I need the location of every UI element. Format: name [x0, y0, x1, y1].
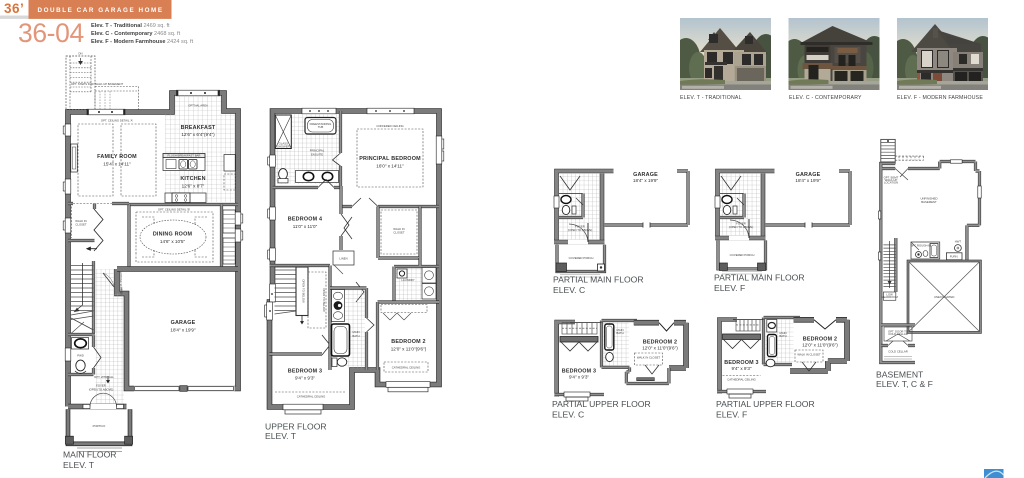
- svg-text:PARTIAL MAIN FLOOR: PARTIAL MAIN FLOOR: [553, 275, 644, 285]
- svg-text:HWT: HWT: [955, 240, 962, 244]
- svg-text:ELEV. C - CONTEMPORARY: ELEV. C - CONTEMPORARY: [789, 95, 862, 101]
- svg-text:BATH: BATH: [616, 331, 623, 335]
- svg-text:PARTIAL UPPER FLOOR: PARTIAL UPPER FLOOR: [716, 399, 815, 409]
- svg-text:TUB: TUB: [318, 125, 324, 129]
- svg-text:GARAGE: GARAGE: [171, 320, 196, 326]
- svg-text:DN: DN: [78, 52, 82, 56]
- svg-text:HEADROOM: HEADROOM: [881, 295, 898, 299]
- svg-text:BASEMENT: BASEMENT: [876, 370, 924, 380]
- svg-text:BEDROOM 3: BEDROOM 3: [288, 369, 322, 375]
- svg-text:CLOSET: CLOSET: [393, 230, 404, 234]
- svg-text:CATHEDRAL CEILING: CATHEDRAL CEILING: [727, 378, 756, 382]
- svg-text:OPT. WTRFALL: OPT. WTRFALL: [94, 375, 114, 379]
- svg-text:LOCATION: LOCATION: [884, 181, 898, 185]
- svg-text:WALK IN CLOSET: WALK IN CLOSET: [797, 353, 821, 357]
- svg-text:MAIN FLOOR: MAIN FLOOR: [63, 450, 116, 460]
- svg-text:3PC ROUGH-IN: 3PC ROUGH-IN: [911, 244, 931, 248]
- svg-text:UNEXCAVATED: UNEXCAVATED: [934, 295, 954, 299]
- svg-text:ELEV. F: ELEV. F: [716, 410, 747, 420]
- svg-text:12'0" x 11'0"(9'6"): 12'0" x 11'0"(9'6"): [802, 343, 838, 348]
- svg-text:9'4" x 9'3": 9'4" x 9'3": [569, 375, 589, 380]
- svg-text:12'0" x 11'0"(9'6"): 12'0" x 11'0"(9'6"): [391, 347, 427, 352]
- svg-text:UPPER FLOOR: UPPER FLOOR: [265, 422, 327, 432]
- svg-text:12'6" x 6'4"(9'4"): 12'6" x 6'4"(9'4"): [181, 132, 215, 137]
- svg-text:WALK IN CLOSET: WALK IN CLOSET: [637, 356, 661, 360]
- svg-text:BATH: BATH: [779, 334, 786, 338]
- svg-text:ELEV. T: ELEV. T: [265, 431, 297, 441]
- svg-text:9'4" x 9'3": 9'4" x 9'3": [731, 366, 751, 371]
- svg-text:COVERED PORCH: COVERED PORCH: [730, 253, 755, 257]
- svg-text:36-04: 36-04: [18, 18, 84, 48]
- svg-text:SHOWER: SHOWER: [277, 144, 290, 148]
- svg-text:15'4" x 14'11": 15'4" x 14'11": [103, 162, 131, 167]
- svg-text:18'4" x 19'9": 18'4" x 19'9": [633, 178, 659, 183]
- svg-text:FURN.: FURN.: [950, 254, 959, 258]
- svg-text:DOUBLE CAR GARAGE HOME: DOUBLE CAR GARAGE HOME: [38, 7, 164, 14]
- svg-text:FLUSH BREAKFAST BAR: FLUSH BREAKFAST BAR: [168, 154, 201, 158]
- svg-text:(OPEN TO ABOVE): (OPEN TO ABOVE): [729, 225, 754, 229]
- svg-text:FAMILY ROOM: FAMILY ROOM: [97, 154, 137, 160]
- svg-text:KITCHEN: KITCHEN: [180, 176, 205, 182]
- svg-text:Elev. T - Traditional 2469 sq.: Elev. T - Traditional 2469 sq. ft: [91, 23, 170, 29]
- svg-text:ELEV. T, C & F: ELEV. T, C & F: [876, 379, 933, 389]
- svg-text:ENSUITE: ENSUITE: [311, 153, 323, 157]
- svg-text:12'0" x 11'0"(9'6"): 12'0" x 11'0"(9'6"): [642, 346, 678, 351]
- svg-text:COLD CELLAR: COLD CELLAR: [888, 350, 907, 354]
- svg-text:36’: 36’: [4, 1, 24, 16]
- svg-text:PARTIAL UPPER FLOOR: PARTIAL UPPER FLOOR: [552, 399, 651, 409]
- svg-text:BEDROOM 4: BEDROOM 4: [288, 217, 322, 223]
- svg-text:(OPEN TO ABOVE): (OPEN TO ABOVE): [89, 388, 114, 392]
- svg-text:LAUNDRY: LAUNDRY: [401, 278, 414, 282]
- svg-text:OPEN TO BELOW: OPEN TO BELOW: [302, 279, 306, 303]
- svg-text:DINING ROOM: DINING ROOM: [153, 232, 193, 238]
- svg-text:ELEV. T: ELEV. T: [63, 460, 95, 470]
- svg-text:BREAKFAST: BREAKFAST: [181, 125, 216, 131]
- svg-text:BATH: BATH: [352, 334, 359, 338]
- svg-text:OPT'NAL AREA: OPT'NAL AREA: [188, 104, 208, 108]
- svg-text:COVERED PORCH: COVERED PORCH: [569, 256, 594, 260]
- svg-text:12'6" x 8'7": 12'6" x 8'7": [182, 184, 205, 189]
- svg-text:ELEV. T - TRADITIONAL: ELEV. T - TRADITIONAL: [680, 95, 742, 101]
- svg-text:LINEN: LINEN: [339, 257, 347, 261]
- svg-text:CLOSET: CLOSET: [75, 223, 86, 227]
- svg-text:PWD: PWD: [77, 354, 84, 358]
- svg-text:ELEV. F - MODERN FARMHOUSE: ELEV. F - MODERN FARMHOUSE: [897, 95, 983, 101]
- svg-text:(OPEN TO ABOVE): (OPEN TO ABOVE): [568, 228, 593, 232]
- svg-text:OPT. CEILING DETAIL 'A': OPT. CEILING DETAIL 'A': [101, 119, 134, 123]
- svg-text:16'0" x 14'11": 16'0" x 14'11": [376, 164, 404, 169]
- svg-text:COFFERED CEILING: COFFERED CEILING: [376, 124, 403, 128]
- svg-text:UP 1R: UP 1R: [120, 287, 124, 295]
- svg-text:18'4" x 19'9": 18'4" x 19'9": [795, 178, 821, 183]
- svg-text:14'6" x 10'5": 14'6" x 10'5": [160, 239, 186, 244]
- svg-text:18'4" x 19'9": 18'4" x 19'9": [170, 328, 196, 333]
- svg-text:BASEMENT: BASEMENT: [921, 200, 937, 204]
- svg-text:Elev. F - Modern Farmhouse 242: Elev. F - Modern Farmhouse 2424 sq. ft: [91, 39, 194, 45]
- svg-text:ELEV. C: ELEV. C: [553, 285, 585, 295]
- svg-text:PRINCIPAL BEDROOM: PRINCIPAL BEDROOM: [359, 156, 421, 162]
- svg-text:OPEN TO BELOW: OPEN TO BELOW: [322, 288, 326, 312]
- svg-text:ELEV. F: ELEV. F: [714, 283, 745, 293]
- svg-text:CATHEDRAL CEILING: CATHEDRAL CEILING: [392, 366, 421, 370]
- svg-text:OPT. CEILING DETAIL 'B': OPT. CEILING DETAIL 'B': [158, 208, 191, 212]
- svg-text:CATHEDRAL CEILING: CATHEDRAL CEILING: [297, 395, 326, 399]
- svg-text:OPT. STEPS FOR WALK-UP BASEMEN: OPT. STEPS FOR WALK-UP BASEMENT: [71, 82, 124, 86]
- svg-text:11'0" x 11'0": 11'0" x 11'0": [293, 224, 318, 229]
- svg-text:Elev. C - Contemporary 2468 sq: Elev. C - Contemporary 2468 sq. ft: [91, 31, 181, 37]
- svg-text:BEDROOM 2: BEDROOM 2: [391, 339, 425, 345]
- svg-text:ELEV. C: ELEV. C: [552, 410, 584, 420]
- svg-text:PARTIAL MAIN FLOOR: PARTIAL MAIN FLOOR: [714, 273, 805, 283]
- svg-text:PORTICO: PORTICO: [93, 424, 107, 428]
- svg-text:9'4" x 9'3": 9'4" x 9'3": [295, 376, 315, 381]
